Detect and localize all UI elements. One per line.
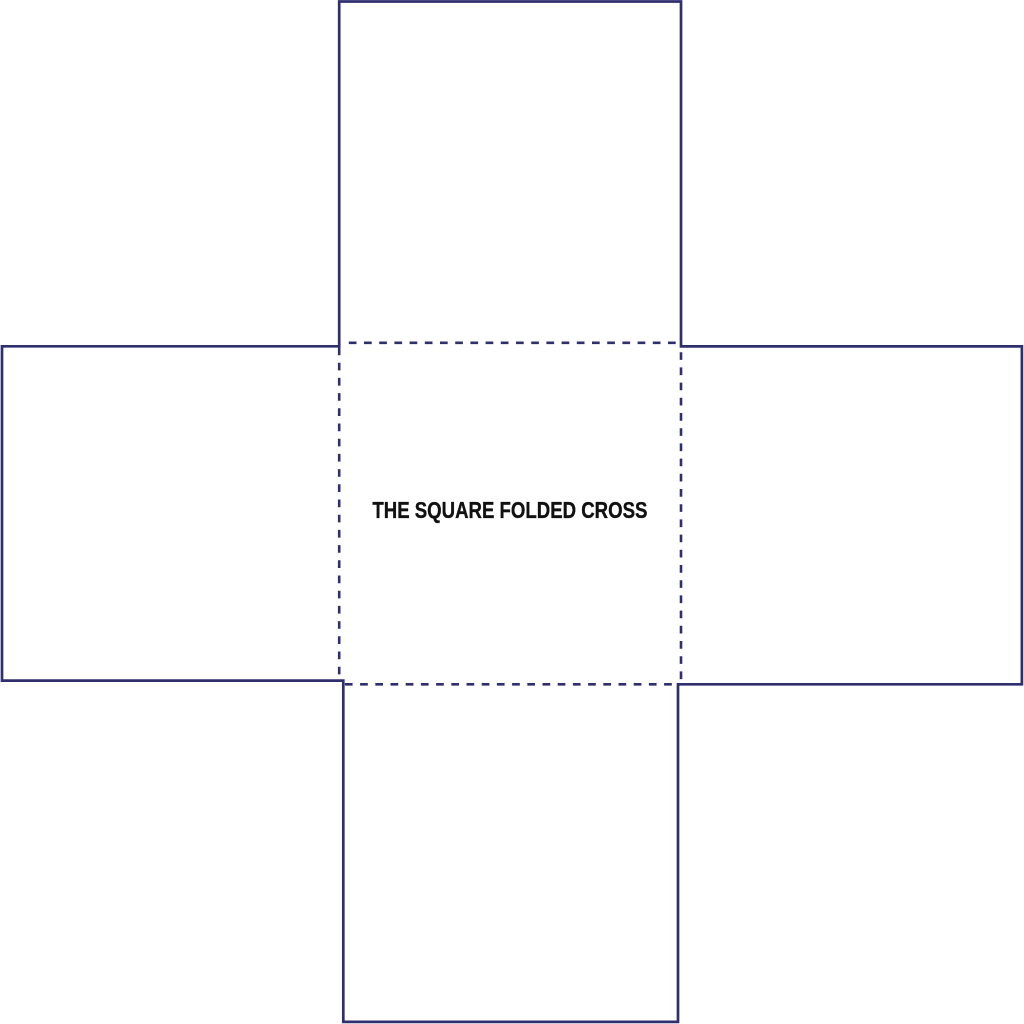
svg-text:THE SQUARE FOLDED CROSS: THE SQUARE FOLDED CROSS [372,497,647,523]
